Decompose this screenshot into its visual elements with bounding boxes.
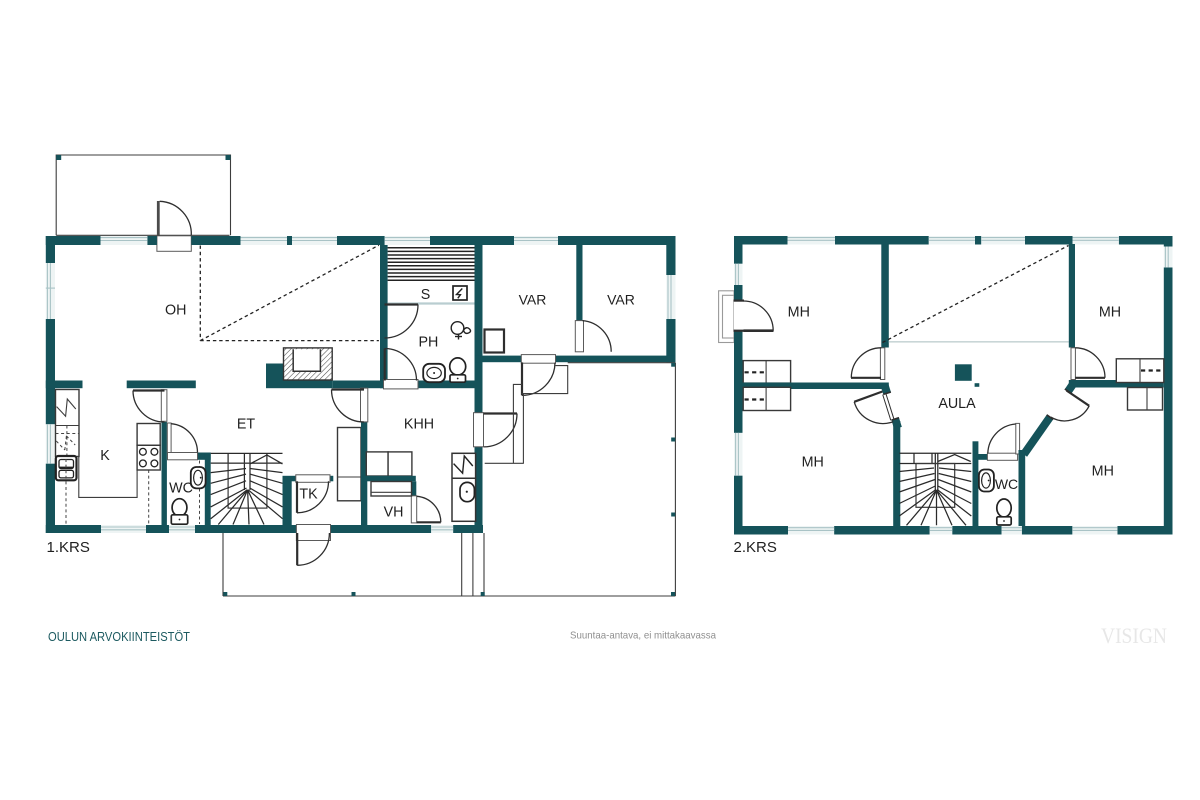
svg-text:S: S bbox=[421, 287, 431, 303]
svg-text:VISIGN: VISIGN bbox=[1101, 623, 1167, 648]
svg-text:OULUN ARVOKIINTEISTÖT: OULUN ARVOKIINTEISTÖT bbox=[48, 630, 190, 644]
svg-text:VAR: VAR bbox=[519, 292, 547, 308]
svg-text:AULA: AULA bbox=[938, 396, 976, 412]
svg-text:VAR: VAR bbox=[607, 292, 635, 308]
svg-text:K: K bbox=[100, 448, 110, 464]
svg-text:KHH: KHH bbox=[404, 417, 434, 433]
svg-text:PH: PH bbox=[418, 335, 438, 351]
svg-text:OH: OH bbox=[165, 303, 186, 319]
svg-text:Suuntaa-antava, ei mittakaavas: Suuntaa-antava, ei mittakaavassa bbox=[570, 630, 716, 642]
svg-text:MH: MH bbox=[802, 455, 824, 471]
svg-text:2.KRS: 2.KRS bbox=[734, 539, 777, 556]
svg-text:MH: MH bbox=[788, 305, 810, 321]
svg-text:MH: MH bbox=[1092, 464, 1114, 480]
svg-text:ET: ET bbox=[237, 417, 256, 433]
svg-text:WC: WC bbox=[995, 476, 1018, 492]
svg-text:VH: VH bbox=[384, 505, 404, 521]
svg-text:TK: TK bbox=[299, 487, 318, 503]
svg-text:WC: WC bbox=[169, 481, 193, 497]
svg-text:1.KRS: 1.KRS bbox=[47, 539, 90, 556]
svg-text:MH: MH bbox=[1099, 305, 1121, 321]
